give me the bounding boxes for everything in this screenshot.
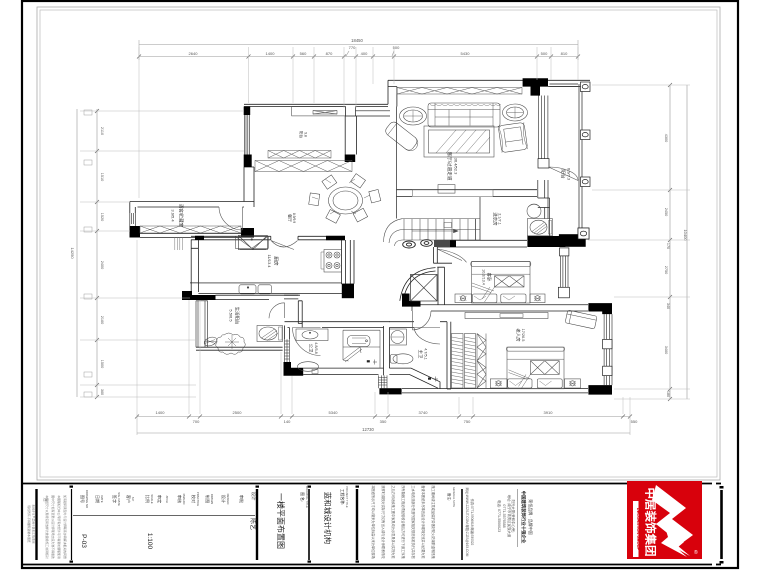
svg-text:设计: 设计 xyxy=(250,492,257,501)
svg-text:中国建筑装饰行业十强企业: 中国建筑装饰行业十强企业 xyxy=(520,491,527,544)
svg-text:放样时请核对实际尺寸如有出入请与设计师联系修改: 放样时请核对实际尺寸如有出入请与设计师联系修改 xyxy=(381,485,386,559)
svg-text:4.7/5.1: 4.7/5.1 xyxy=(424,348,428,360)
svg-text:2450: 2450 xyxy=(664,208,668,216)
svg-text:340: 340 xyxy=(666,303,670,309)
svg-text:工程名称:: 工程名称: xyxy=(340,489,345,505)
svg-text:洗衣房: 洗衣房 xyxy=(492,212,499,226)
svg-text:2400: 2400 xyxy=(100,261,104,269)
svg-text:400: 400 xyxy=(361,51,368,56)
svg-text:酒窖/贮藏室: 酒窖/贮藏室 xyxy=(178,204,185,228)
svg-text:SCALE: SCALE xyxy=(150,494,154,503)
svg-text:500: 500 xyxy=(541,51,548,56)
svg-text:P-03: P-03 xyxy=(80,534,87,548)
svg-text:5430: 5430 xyxy=(461,51,471,56)
svg-text:11/13.4: 11/13.4 xyxy=(267,254,272,268)
svg-text:36.4/52.3: 36.4/52.3 xyxy=(454,158,459,175)
svg-text:180: 180 xyxy=(666,391,670,397)
svg-text:DWGXD: DWGXD xyxy=(182,494,186,505)
svg-text:电话: 0771-5500023: 电话: 0771-5500023 xyxy=(497,500,502,532)
svg-text:备查本图纸未尽事宜由设计师现场交底并以纪要为准: 备查本图纸未尽事宜由设计师现场交底并以纪要为准 xyxy=(421,485,426,559)
svg-text:本图纸所示尺寸均以毫米为单位标高以米为单位现场: 本图纸所示尺寸均以毫米为单位标高以米为单位现场 xyxy=(371,485,376,558)
svg-text:阳光大厦(荣和中心旁): 阳光大厦(荣和中心旁) xyxy=(511,500,516,533)
svg-text:9.8: 9.8 xyxy=(304,132,308,137)
svg-text:阳台: 阳台 xyxy=(560,169,567,179)
svg-text:蓝和城设计机构: 蓝和城设计机构 xyxy=(323,492,333,545)
svg-text:JYOH: JYOH xyxy=(165,495,169,502)
svg-text:客户: 客户 xyxy=(125,495,132,503)
svg-text:生活阳台: 生活阳台 xyxy=(234,307,241,325)
svg-text:客卧: 客卧 xyxy=(486,273,493,282)
svg-text:3.9/5.4: 3.9/5.4 xyxy=(171,209,176,222)
svg-text:审批: 审批 xyxy=(238,495,245,504)
svg-text:700: 700 xyxy=(193,419,200,424)
svg-text:1520: 1520 xyxy=(100,213,104,221)
svg-text:1:100: 1:100 xyxy=(146,533,153,550)
svg-text:PROJECT TITLE: PROJECT TITLE xyxy=(345,486,349,507)
svg-text:客厅/过道走道: 客厅/过道走道 xyxy=(446,152,453,181)
svg-text:一楼平面布置图: 一楼平面布置图 xyxy=(276,493,286,549)
svg-text:未经许可严禁用于其他工程项目: 未经许可严禁用于其他工程项目 xyxy=(32,504,36,543)
svg-text:2640: 2640 xyxy=(189,51,199,56)
svg-text:360: 360 xyxy=(100,389,104,395)
svg-text:4.8/5.8: 4.8/5.8 xyxy=(314,342,318,354)
svg-text:10.2/13.4: 10.2/13.4 xyxy=(482,269,486,285)
svg-text:荣恒品牌 · 品牌中国: 荣恒品牌 · 品牌中国 xyxy=(528,499,534,535)
svg-text:14250: 14250 xyxy=(70,247,75,259)
svg-text:GENERAL NOTE: GENERAL NOTE xyxy=(452,487,456,507)
svg-text:2160: 2160 xyxy=(100,316,104,324)
svg-text:6.9/7.3: 6.9/7.3 xyxy=(567,168,572,181)
svg-text:DRAWING NO: DRAWING NO xyxy=(85,490,89,509)
svg-text:PRACTICE: PRACTICE xyxy=(196,492,200,506)
svg-text:170: 170 xyxy=(666,243,670,249)
svg-text:17/26.5: 17/26.5 xyxy=(521,329,525,342)
svg-text:5.5/6.5: 5.5/6.5 xyxy=(229,309,234,322)
svg-text:设计: 设计 xyxy=(220,495,227,503)
svg-text:8.9/9.9: 8.9/9.9 xyxy=(292,213,296,223)
svg-text:770: 770 xyxy=(349,45,356,50)
svg-text:校对: 校对 xyxy=(190,495,197,503)
svg-text:DATE: DATE xyxy=(100,495,104,502)
svg-text:传真:0771-5506818 邮编:530022: 传真:0771-5506818 邮编:530022 xyxy=(470,499,475,546)
svg-text:870: 870 xyxy=(326,51,333,56)
svg-text:主卫: 主卫 xyxy=(418,350,424,359)
svg-text:18450: 18450 xyxy=(351,38,363,43)
svg-text:本图版权归本公司所有未经许可不得复制翻版使用: 本图版权归本公司所有未经许可不得复制翻版使用 xyxy=(57,495,62,559)
svg-text:网址:WWW.ZJZSJT.COM 邮箱:ZJZS@163.: 网址:WWW.ZJZSJT.COM 邮箱:ZJZS@163.COM xyxy=(465,488,470,557)
svg-text:老人房: 老人房 xyxy=(515,328,522,342)
svg-text:比例: 比例 xyxy=(144,495,151,503)
svg-text:DRAWING TITLE: DRAWING TITLE xyxy=(305,486,309,508)
svg-text:140: 140 xyxy=(284,419,291,424)
svg-text:560: 560 xyxy=(300,51,307,56)
svg-text:2.1/7.1: 2.1/7.1 xyxy=(498,213,502,225)
svg-text:2500: 2500 xyxy=(233,410,243,415)
svg-text:2110: 2110 xyxy=(100,127,104,135)
svg-text:1400: 1400 xyxy=(156,410,166,415)
svg-text:备注:: 备注: xyxy=(447,493,452,501)
svg-text:如有疑问请及时与设计师联系协商解决相关的问题: 如有疑问请及时与设计师联系协商解决相关的问题 xyxy=(63,495,68,559)
svg-text:厨房: 厨房 xyxy=(273,256,280,266)
svg-text:3740: 3740 xyxy=(419,410,429,415)
svg-text:3910: 3910 xyxy=(544,410,554,415)
svg-text:1400: 1400 xyxy=(266,51,276,56)
svg-text:图中尺寸如有变更以设计师现场交底为准不得擅改: 图中尺寸如有变更以设计师现场交底为准不得擅改 xyxy=(51,495,56,559)
svg-text:版权所有,不得翻版复制本图纸: 版权所有,不得翻版复制本图纸 xyxy=(27,505,31,542)
svg-text:图 名:: 图 名: xyxy=(300,492,305,502)
svg-text:DESIGN: DESIGN xyxy=(226,494,230,505)
svg-text:SIG. DATE: SIG. DATE xyxy=(117,492,121,506)
svg-text:5340: 5340 xyxy=(329,410,339,415)
svg-text:之后方可继续施工图中家具均为示意具体以实物为准: 之后方可继续施工图中家具均为示意具体以实物为准 xyxy=(391,485,396,559)
svg-text:本图纸尺寸以现场实际放样为准装修施工前请核对: 本图纸尺寸以现场实际放样为准装修施工前请核对 xyxy=(45,495,50,559)
svg-text:10400: 10400 xyxy=(683,229,688,241)
svg-text:810: 810 xyxy=(561,51,568,56)
svg-text:所有隐蔽工程必须经验收合格后方可进行下道工序施: 所有隐蔽工程必须经验收合格后方可进行下道工序施 xyxy=(401,485,406,559)
svg-text:®: ® xyxy=(694,549,698,556)
svg-text:审定: 审定 xyxy=(156,495,163,503)
svg-text:S.P: S.P xyxy=(131,497,135,502)
svg-text:12730: 12730 xyxy=(362,427,374,432)
svg-text:DRAWN: DRAWN xyxy=(210,494,214,504)
svg-text:陈艺: 陈艺 xyxy=(249,518,257,530)
svg-text:施工期间请注意成品保护并做好防火防潮防盗等措施: 施工期间请注意成品保护并做好防火防潮防盗等措施 xyxy=(431,485,436,559)
svg-text:工水电改造部分须遵守国家相关规范标准执行并存档: 工水电改造部分须遵守国家相关规范标准执行并存档 xyxy=(411,485,416,558)
svg-text:0771-5576588: 0771-5576588 xyxy=(502,504,506,527)
svg-text:3460: 3460 xyxy=(664,346,668,354)
svg-text:1500: 1500 xyxy=(100,360,104,368)
svg-text:阳台: 阳台 xyxy=(299,131,304,139)
svg-text:2750: 2750 xyxy=(664,266,668,274)
svg-text:350: 350 xyxy=(380,419,387,424)
svg-text:制图: 制图 xyxy=(204,495,211,503)
svg-text:1510: 1510 xyxy=(100,173,104,181)
svg-text:公卫: 公卫 xyxy=(309,344,314,353)
svg-text:DECORATION GROUP: DECORATION GROUP xyxy=(636,508,641,551)
svg-text:750: 750 xyxy=(464,419,471,424)
svg-text:4300: 4300 xyxy=(664,134,668,142)
svg-text:550: 550 xyxy=(631,419,638,424)
svg-text:审核: 审核 xyxy=(176,495,183,504)
